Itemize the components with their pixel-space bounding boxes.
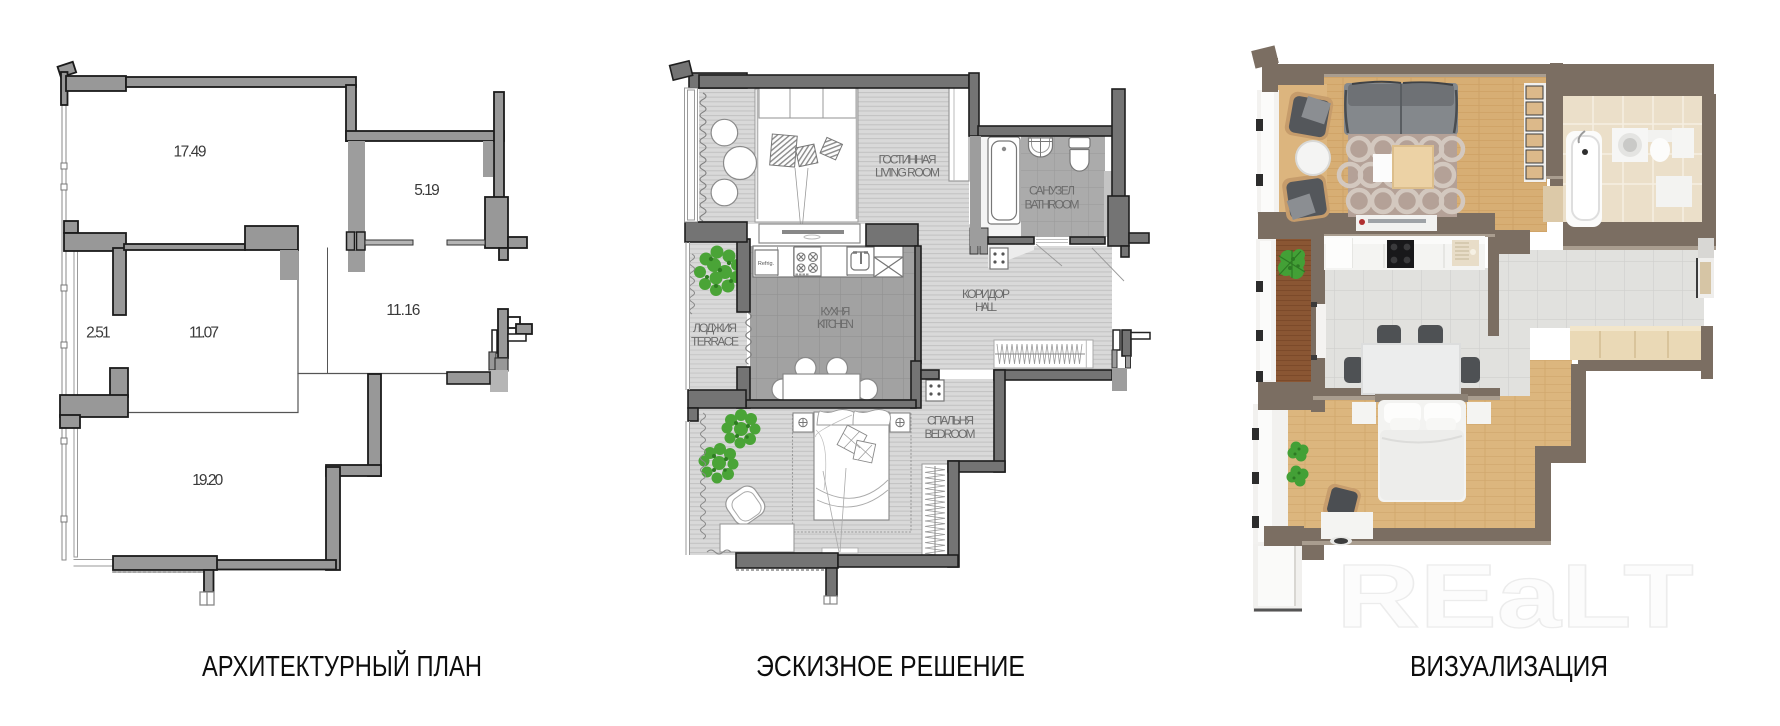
svg-text:11.16: 11.16 <box>386 302 420 319</box>
svg-text:REaLT: REaLT <box>1336 546 1693 646</box>
svg-text:ВИЗУАЛИЗАЦИЯ: ВИЗУАЛИЗАЦИЯ <box>1410 651 1608 683</box>
svg-text:СПАЛЬНЯ: СПАЛЬНЯ <box>927 413 974 427</box>
svg-text:17.49: 17.49 <box>174 144 207 161</box>
svg-text:АРХИТЕКТУРНЫЙ ПЛАН: АРХИТЕКТУРНЫЙ ПЛАН <box>202 651 482 683</box>
svg-text:BATHROOM: BATHROOM <box>1025 198 1080 212</box>
svg-text:2.51: 2.51 <box>86 325 111 342</box>
svg-text:ЛОДЖИЯ: ЛОДЖИЯ <box>693 321 737 335</box>
svg-text:КОРИДОР: КОРИДОР <box>962 287 1010 301</box>
svg-text:5.19: 5.19 <box>414 182 440 199</box>
svg-text:KITCHEN: KITCHEN <box>817 317 854 331</box>
svg-text:19.20: 19.20 <box>192 472 223 489</box>
svg-text:TERRACE: TERRACE <box>691 335 739 349</box>
svg-text:11.07: 11.07 <box>189 325 219 342</box>
svg-text:САНУЗЕЛ: САНУЗЕЛ <box>1029 184 1075 198</box>
svg-text:BEDROOM: BEDROOM <box>925 427 976 441</box>
svg-text:ЭСКИЗНОЕ РЕШЕНИЕ: ЭСКИЗНОЕ РЕШЕНИЕ <box>756 651 1025 683</box>
svg-text:ГОСТИННАЯ: ГОСТИННАЯ <box>879 153 937 167</box>
svg-text:HALL: HALL <box>975 300 997 314</box>
svg-text:Refrig.: Refrig. <box>758 261 775 267</box>
svg-text:LIVING ROOM: LIVING ROOM <box>875 166 940 180</box>
